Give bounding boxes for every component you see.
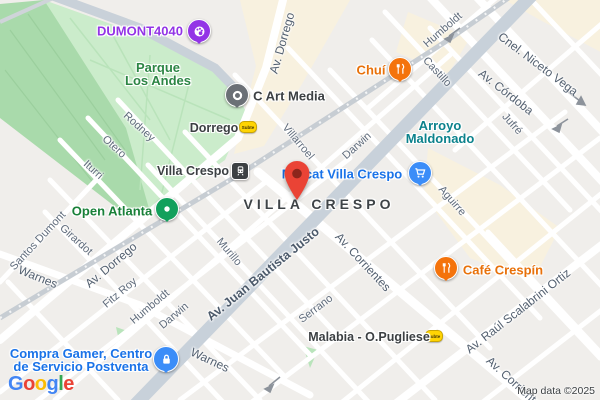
poi-label-cafe-crespin[interactable]: Café Crespín [463,263,543,278]
station-label-dorrego[interactable]: Dorrego [190,121,239,135]
park-label: ParqueLos Andes [125,61,191,87]
restaurant-icon[interactable] [388,57,412,81]
fork-knife-glyph [394,63,406,75]
shopping-cart-icon[interactable] [408,161,432,185]
poi-label-dumont4040[interactable]: DUMONT4040 [97,24,183,39]
map-pin-icon[interactable] [283,160,311,202]
train-station-icon[interactable] [231,162,249,180]
cart-glyph [414,167,426,179]
poi-label-c-art-media[interactable]: C Art Media [253,89,325,104]
ring-glyph [231,89,244,102]
waterway-label-arroyo-maldonado: ArroyoMaldonado [406,119,475,145]
dot-glyph [161,203,173,215]
poi-label-open-atlanta[interactable]: Open Atlanta [72,204,152,219]
palette-glyph [193,25,206,38]
subte-icon[interactable]: Subte [239,121,257,133]
station-label-villa-crespo[interactable]: Villa Crespo [157,164,229,178]
map-canvas[interactable]: Humboldt Cnel. Niceto Vega Castillo Av. … [0,0,600,400]
restaurant-icon[interactable] [434,256,458,280]
lock-glyph [160,353,173,366]
palette-icon[interactable] [187,19,211,43]
map-attribution: Map data ©2025 [517,385,595,397]
poi-label-chui[interactable]: Chuí [357,63,386,78]
subte-badge-text: Subte [242,125,255,130]
train-glyph [235,165,246,177]
google-logo[interactable]: Google [8,373,74,396]
poi-label-compra-gamer[interactable]: Compra Gamer, Centrode Servicio Postvent… [10,347,152,373]
station-label-malabia[interactable]: Malabia - O.Pugliese [308,330,430,344]
lock-icon[interactable] [153,346,179,372]
green-dot-icon[interactable] [155,197,179,221]
fork-knife-glyph [440,262,452,274]
venue-ring-icon[interactable] [225,83,249,107]
neighborhood-label: VILLA CRESPO [244,196,395,212]
